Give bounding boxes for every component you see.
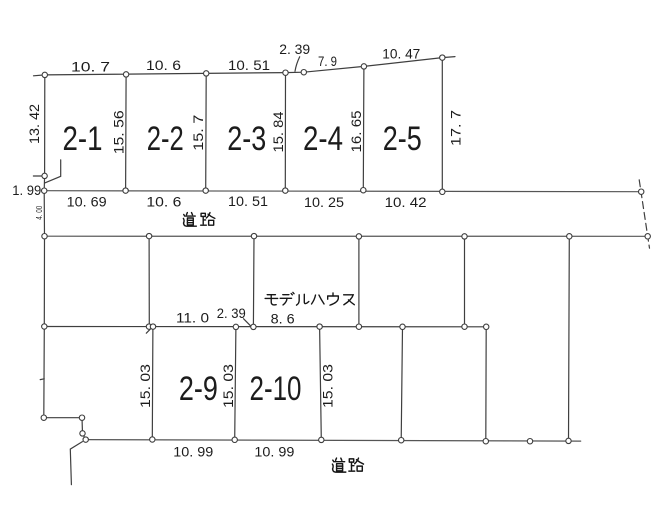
svg-text:15. 03: 15. 03 — [319, 364, 335, 408]
svg-text:2-2: 2-2 — [147, 120, 184, 158]
svg-text:2. 39: 2. 39 — [217, 305, 246, 321]
svg-text:4. 00: 4. 00 — [35, 205, 44, 219]
svg-text:15. 84: 15. 84 — [270, 111, 286, 152]
svg-text:16. 65: 16. 65 — [348, 110, 364, 152]
svg-text:10. 25: 10. 25 — [304, 194, 344, 210]
svg-text:7. 9: 7. 9 — [318, 53, 337, 69]
svg-text:2-5: 2-5 — [383, 120, 422, 158]
svg-text:2-3: 2-3 — [227, 120, 266, 158]
svg-text:2. 39: 2. 39 — [279, 41, 310, 57]
svg-text:10. 51: 10. 51 — [228, 193, 268, 209]
svg-text:15. 03: 15. 03 — [220, 364, 236, 408]
svg-text:10. 99: 10. 99 — [254, 444, 294, 460]
svg-text:10. 47: 10. 47 — [382, 46, 420, 62]
svg-text:13. 42: 13. 42 — [26, 104, 42, 144]
svg-text:17. 7: 17. 7 — [448, 110, 464, 146]
svg-text:15. 56: 15. 56 — [111, 110, 127, 154]
svg-text:10. 69: 10. 69 — [67, 194, 107, 210]
svg-text:8. 6: 8. 6 — [271, 310, 295, 326]
svg-text:10. 51: 10. 51 — [228, 57, 270, 73]
svg-text:10. 42: 10. 42 — [385, 194, 427, 210]
svg-text:15. 03: 15. 03 — [137, 364, 153, 408]
svg-text:10. 7: 10. 7 — [71, 59, 110, 75]
svg-text:10. 6: 10. 6 — [146, 57, 181, 73]
svg-text:11. 0: 11. 0 — [176, 310, 209, 326]
svg-text:10. 99: 10. 99 — [173, 444, 213, 460]
svg-text:15. 7: 15. 7 — [190, 115, 206, 151]
svg-text:2-10: 2-10 — [250, 370, 302, 408]
svg-text:10. 6: 10. 6 — [146, 193, 181, 209]
svg-text:1. 99: 1. 99 — [12, 182, 41, 198]
svg-text:2-1: 2-1 — [63, 120, 103, 158]
svg-text:2-4: 2-4 — [303, 120, 343, 158]
svg-text:2-9: 2-9 — [179, 370, 218, 408]
